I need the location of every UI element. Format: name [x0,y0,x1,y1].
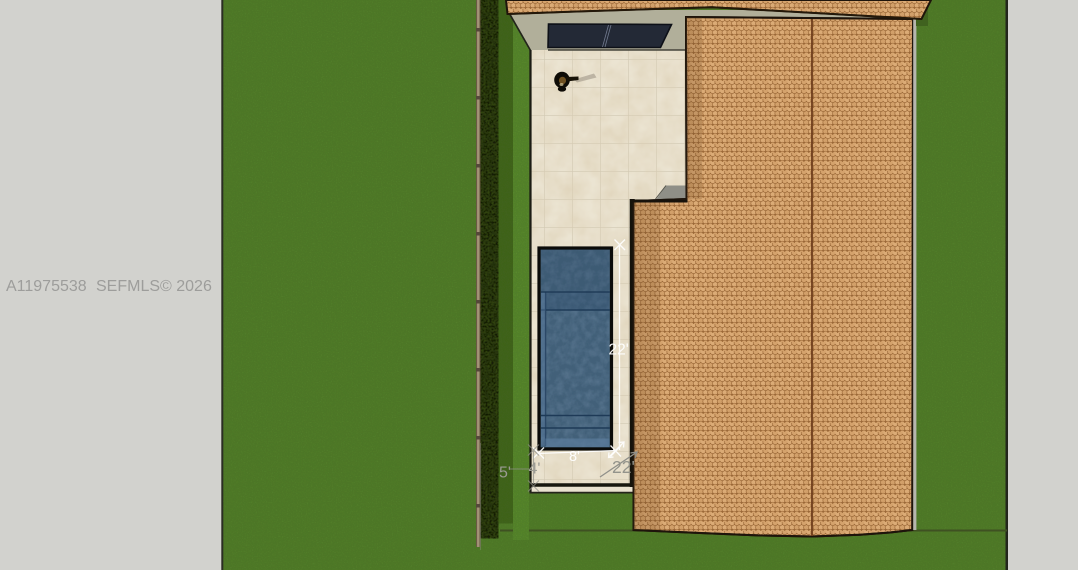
svg-text:SEFMLS© 2026: SEFMLS© 2026 [96,278,212,295]
svg-text:22': 22' [609,342,629,359]
svg-text:5': 5' [499,465,511,482]
svg-text:A11975538: A11975538 [6,278,87,295]
svg-text:8': 8' [569,449,580,465]
svg-text:22': 22' [612,457,635,477]
svg-text:4': 4' [529,461,541,478]
